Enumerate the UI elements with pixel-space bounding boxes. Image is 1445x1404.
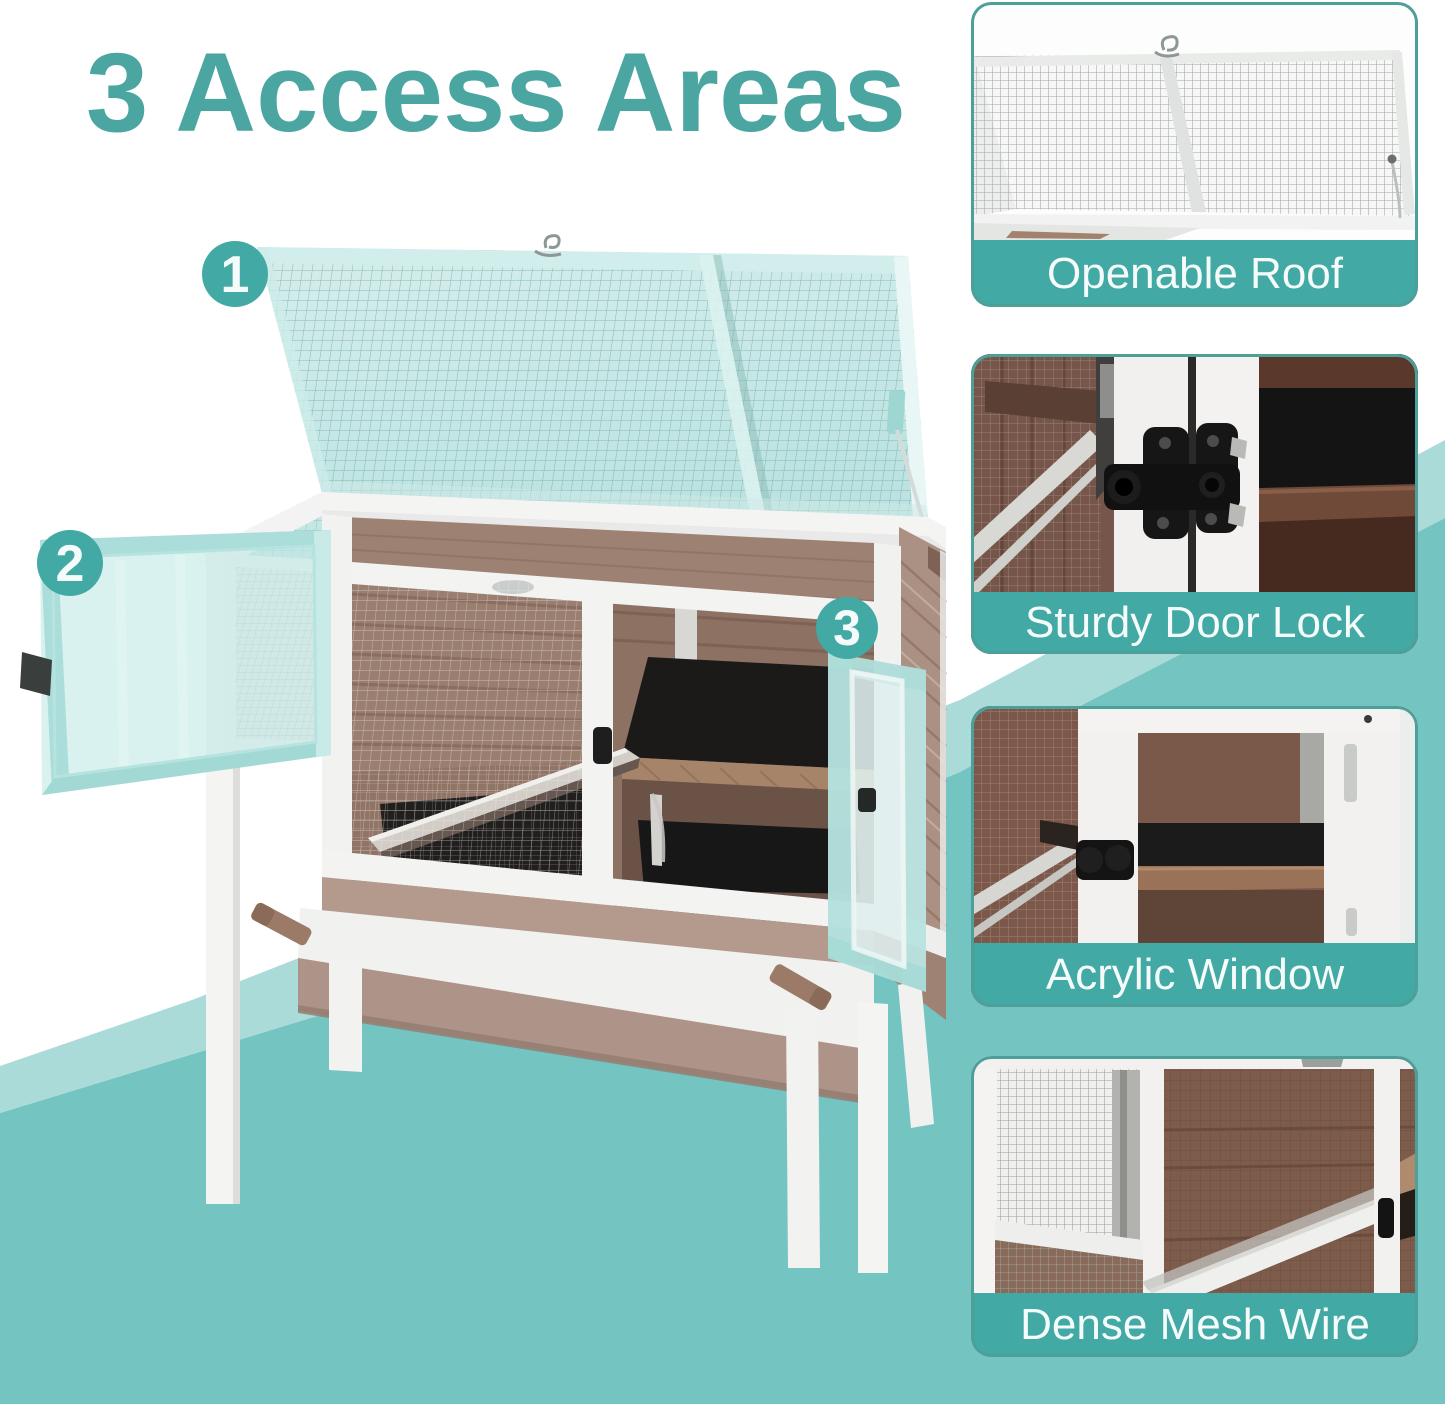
svg-text:2: 2 — [56, 535, 85, 593]
svg-text:1: 1 — [221, 246, 250, 304]
svg-text:Acrylic Window: Acrylic Window — [1046, 950, 1344, 999]
svg-text:Sturdy Door Lock: Sturdy Door Lock — [1025, 598, 1366, 647]
svg-text:3: 3 — [833, 600, 861, 656]
svg-text:Dense Mesh Wire: Dense Mesh Wire — [1020, 1300, 1370, 1349]
svg-text:Openable Roof: Openable Roof — [1047, 249, 1344, 298]
svg-text:3 Access Areas: 3 Access Areas — [86, 30, 906, 155]
